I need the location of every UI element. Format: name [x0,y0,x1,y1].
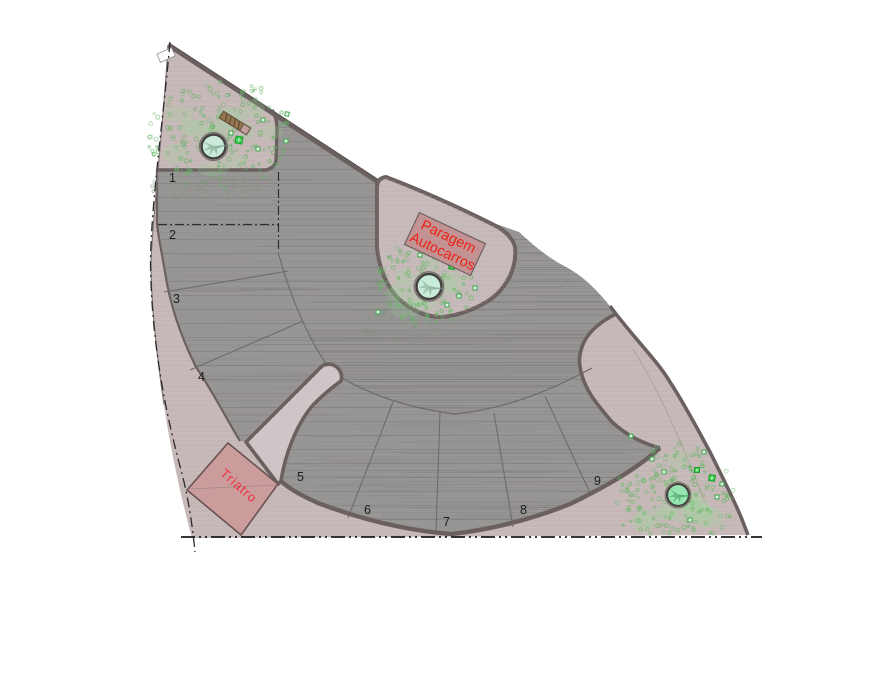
svg-text:7: 7 [443,515,450,529]
svg-text:4: 4 [198,370,205,384]
svg-text:9: 9 [594,474,601,488]
svg-text:8: 8 [520,503,527,517]
svg-text:2: 2 [169,228,176,242]
svg-text:6: 6 [364,503,371,517]
svg-text:3: 3 [173,292,180,306]
svg-text:1: 1 [169,171,176,185]
svg-text:5: 5 [297,470,304,484]
